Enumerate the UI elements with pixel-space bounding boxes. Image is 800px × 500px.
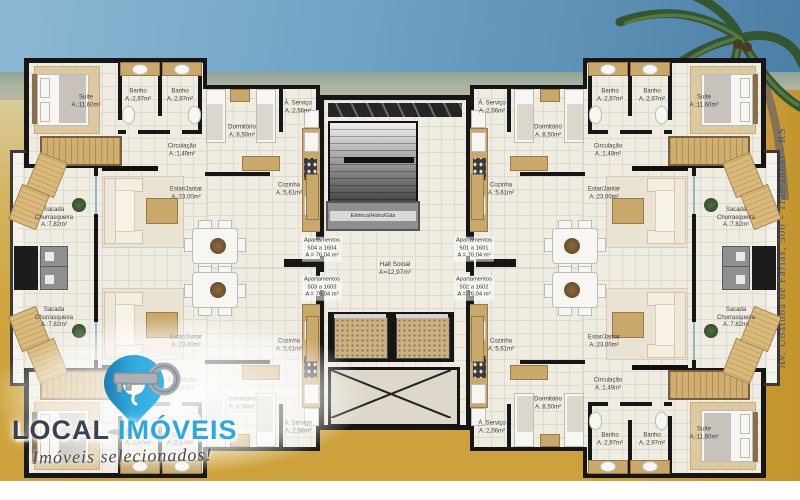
logo-word-local: LOCAL [12,415,110,445]
utility-shaft: Elétrica/Hidro/Gás [326,201,420,231]
sink [132,64,148,75]
toilet [122,106,135,124]
pillow [40,102,50,122]
sink [174,64,190,75]
plant [72,198,86,212]
sofa-seat [115,190,135,232]
desk [242,156,280,171]
coffee-table [146,198,178,224]
apartment-quadrant: SuíteA.:11,60m² BanhoA.:2,97m² BanhoA.:2… [470,268,780,478]
stair-handrail [344,157,414,163]
address-text: Av. Ubatuba de Farias, 500 - Tramandaí -… [776,98,788,398]
barbecue-grill [14,246,38,268]
room-label-dormitorio: DormitórioA.:8,50m² [228,125,256,140]
unit-label-502: Apartamentos502 a 1602A = 76,04 m² [454,276,494,301]
logo-word-imoveis: IMÓVEIS [118,415,238,445]
logo-tagline: Imóveis selecionados! [32,444,213,468]
skylight [328,103,462,117]
pillow [40,78,50,98]
bed-blanket [257,104,273,140]
apartment-quadrant: SuíteA.:11,60m² BanhoA.:2,97m² BanhoA.:2… [10,58,320,268]
room-label-estar: Estar/JantarA.:23,00m² [170,187,202,202]
tv-panel [102,166,158,171]
floorplan-flyer: { "colors":{"brand_blue":"#2aa9e0","bran… [0,0,800,481]
room-label-sacada: SacadaChurrasqueiraA.:7,82m² [35,207,73,230]
glass-door [95,176,97,214]
plant [210,238,226,254]
room-label-cozinha: CozinhaA.:5,61m² [276,183,302,198]
room-label-banho: BanhoA.:2,97m² [125,89,151,104]
unit-label-504: Apartamentos504 a 1604A = 76,04 m² [302,237,342,262]
fridge [304,132,319,152]
room-label-circulacao: CirculaçãoA.:1,49m² [168,144,196,159]
hall-label: Hall SocialA=12,97m² [379,261,411,277]
room-label-servico: Á. ServiçoA.:2,56m² [284,101,311,116]
toilet [188,106,201,124]
logo-glow [0,290,430,500]
utility-shaft-label: Elétrica/Hidro/Gás [330,211,416,221]
logo-wordmark: LOCAL IMÓVEIS [12,415,262,446]
balcony-railing [10,150,26,153]
unit-label-501: Apartamentos501 a 1601A = 76,04 m² [454,237,494,262]
bed-blanket [207,104,223,140]
sideboard [306,174,319,220]
room-label-banho: BanhoA.:2,97m² [167,89,193,104]
sofa [115,230,143,244]
apartment-quadrant: SuíteA.:11,60m² BanhoA.:2,97m² BanhoA.:2… [470,58,780,268]
nightstand [230,89,250,102]
room-label-suite: SuíteA.:11,60m² [72,95,101,110]
